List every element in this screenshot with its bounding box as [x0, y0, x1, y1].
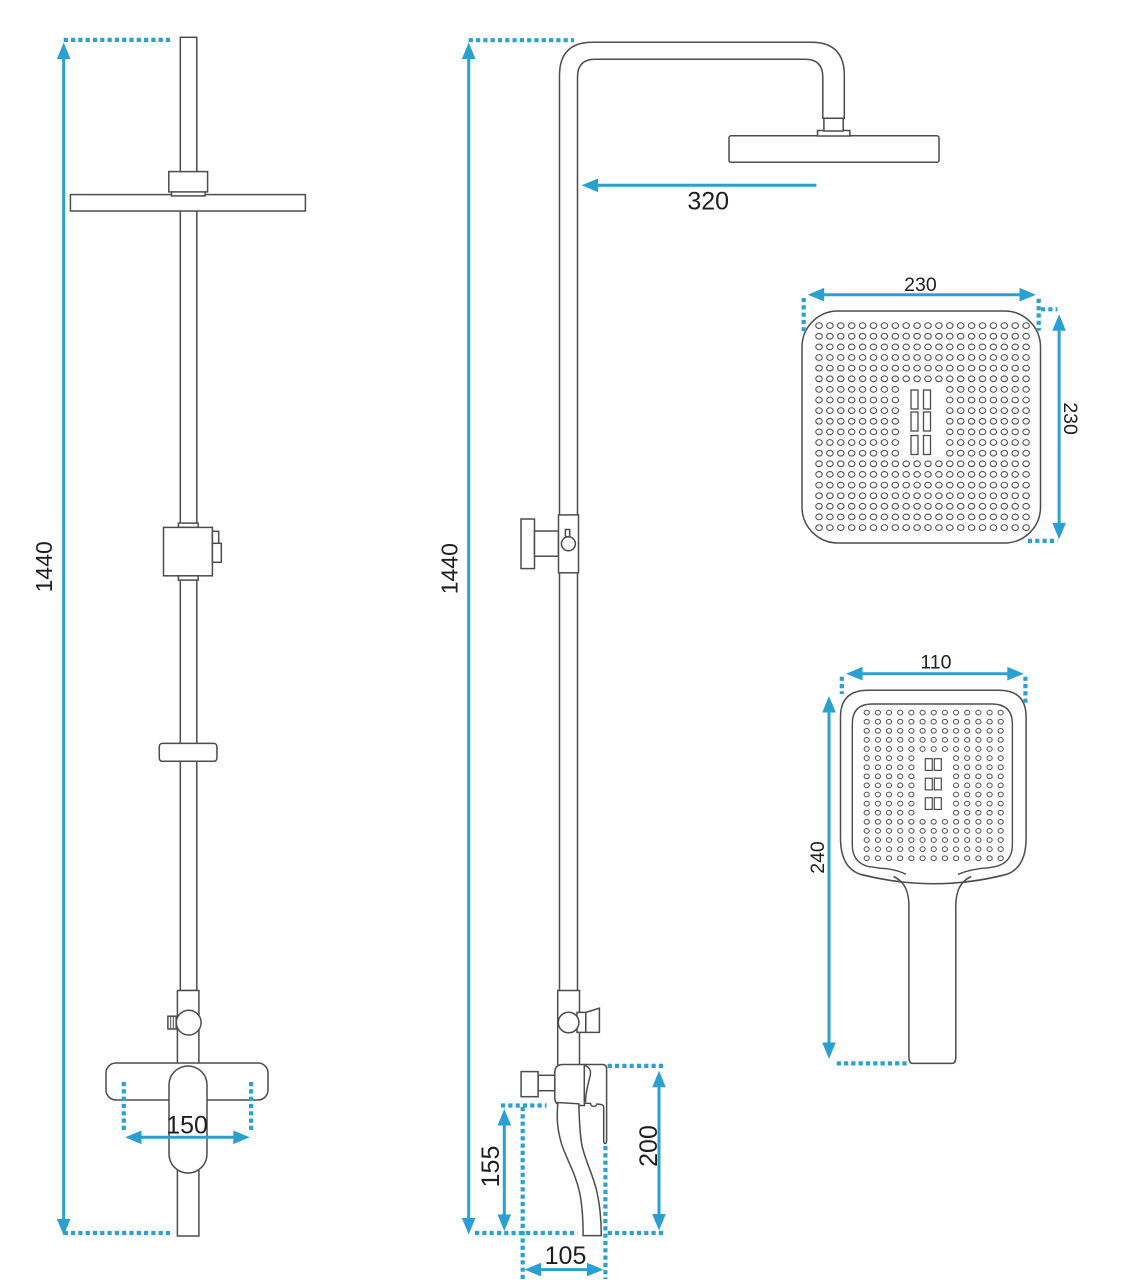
svg-text:150: 150 [166, 1111, 208, 1139]
svg-text:1440: 1440 [31, 541, 57, 592]
svg-text:230: 230 [904, 274, 937, 296]
svg-text:1440: 1440 [437, 543, 463, 594]
svg-text:320: 320 [687, 188, 729, 216]
svg-text:105: 105 [545, 1242, 587, 1270]
svg-text:110: 110 [920, 652, 951, 674]
svg-text:240: 240 [807, 841, 829, 874]
svg-text:200: 200 [635, 1125, 663, 1167]
svg-text:155: 155 [477, 1146, 505, 1188]
svg-text:230: 230 [1059, 402, 1081, 435]
